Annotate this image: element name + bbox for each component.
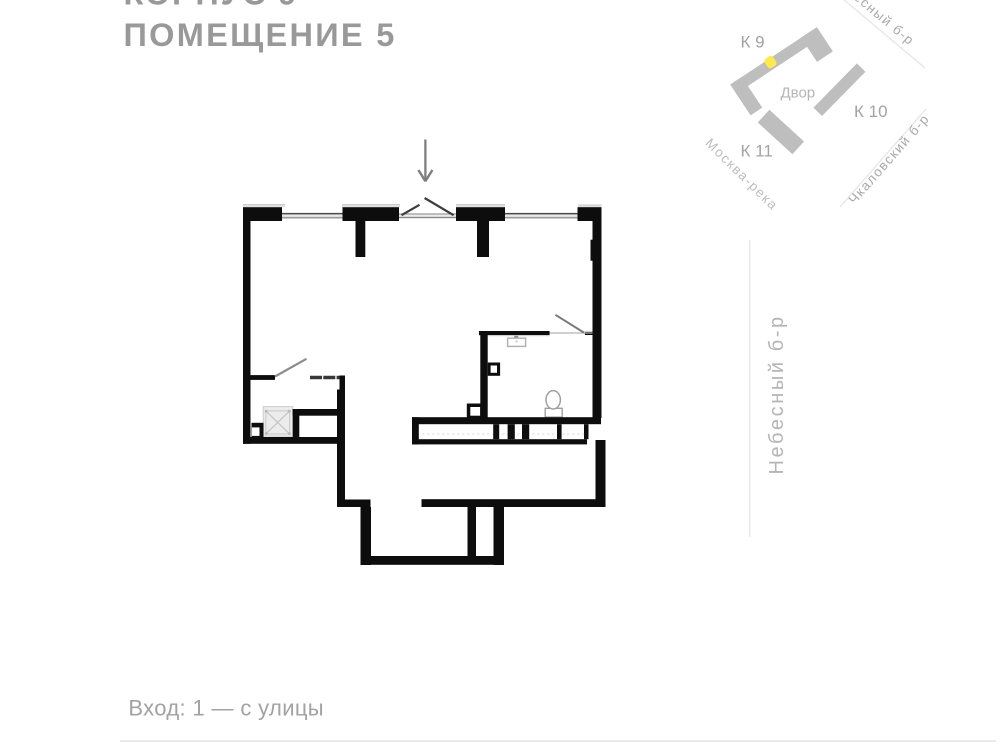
svg-text:ПОМЕЩЕНИЕ 5: ПОМЕЩЕНИЕ 5	[124, 17, 397, 53]
svg-text:К 10: К 10	[854, 102, 888, 121]
svg-text:К 9: К 9	[741, 32, 765, 51]
svg-text:Небесный б-р: Небесный б-р	[766, 314, 788, 474]
svg-text:КОРПУС 9: КОРПУС 9	[124, 0, 299, 12]
svg-text:К 11: К 11	[741, 142, 773, 161]
svg-text:Двор: Двор	[781, 85, 816, 102]
svg-text:Вход: 1 — с улицы: Вход: 1 — с улицы	[128, 696, 324, 721]
